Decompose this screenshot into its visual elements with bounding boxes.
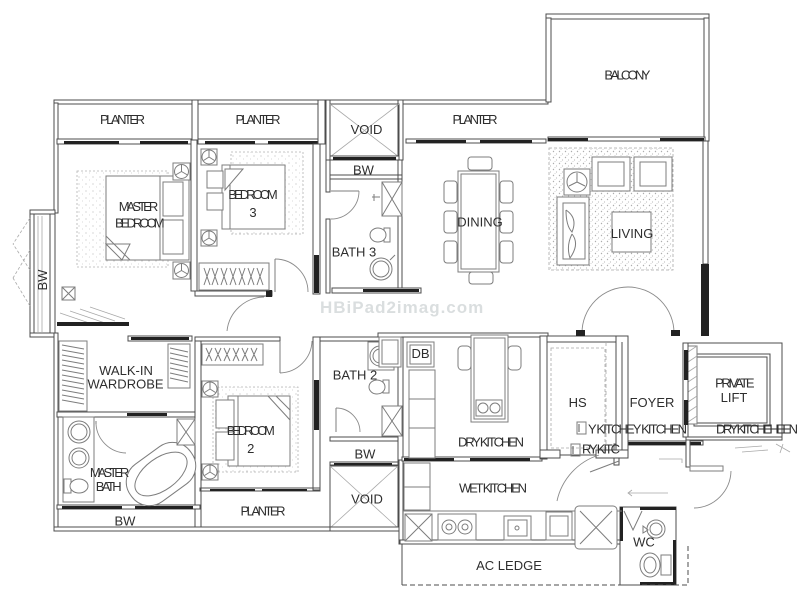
svg-text:VOID: VOID (351, 122, 383, 137)
svg-text:FOYER: FOYER (630, 395, 675, 410)
svg-text:BEDROOM: BEDROOM (228, 187, 278, 202)
svg-text:PLANTER: PLANTER (236, 112, 281, 127)
svg-text:MASTER: MASTER (119, 199, 159, 214)
svg-text:VOID: VOID (351, 492, 383, 507)
svg-text:BALCONY: BALCONY (604, 68, 650, 83)
svg-text:BEDROOM: BEDROOM (115, 216, 165, 231)
svg-text:MASTER: MASTER (90, 465, 129, 480)
svg-text:DRY KITCHEN: DRY KITCHEN (458, 435, 524, 450)
svg-text:BW: BW (115, 514, 137, 529)
svg-text:BEDROOM: BEDROOM (227, 423, 275, 438)
svg-text:RY KITC: RY KITC (582, 442, 620, 457)
svg-text:BW: BW (355, 447, 377, 462)
svg-text:AC LEDGE: AC LEDGE (476, 558, 542, 573)
svg-text:BW: BW (35, 269, 50, 291)
svg-text:WARDROBE: WARDROBE (87, 377, 163, 392)
svg-text:BATH 2: BATH 2 (333, 368, 378, 383)
svg-text:LIVING: LIVING (611, 226, 654, 241)
svg-text:HBiPad2imag.com: HBiPad2imag.com (320, 298, 484, 317)
svg-text:WET KITCHEN: WET KITCHEN (459, 481, 527, 496)
svg-text:3: 3 (249, 205, 256, 220)
svg-text:DB: DB (411, 346, 429, 361)
svg-text:WC: WC (633, 535, 655, 550)
svg-text:LIFT: LIFT (721, 390, 748, 405)
svg-text:2: 2 (247, 441, 254, 456)
svg-text:PLANTER: PLANTER (241, 504, 286, 519)
svg-text:DINING: DINING (457, 215, 503, 230)
svg-text:BATH 3: BATH 3 (332, 245, 377, 260)
svg-text:HS: HS (569, 395, 587, 410)
svg-text:BATH: BATH (96, 479, 122, 494)
svg-text:PLANTER: PLANTER (453, 112, 498, 127)
svg-text:PRIVATE: PRIVATE (715, 376, 755, 391)
svg-text:DRY KITCHEHEEN: DRY KITCHEHEEN (716, 422, 798, 437)
svg-text:PLANTER: PLANTER (100, 112, 145, 127)
svg-text:Y KITCHEY KITCHEN: Y KITCHEY KITCHEN (588, 422, 687, 437)
svg-text:BW: BW (353, 163, 375, 178)
